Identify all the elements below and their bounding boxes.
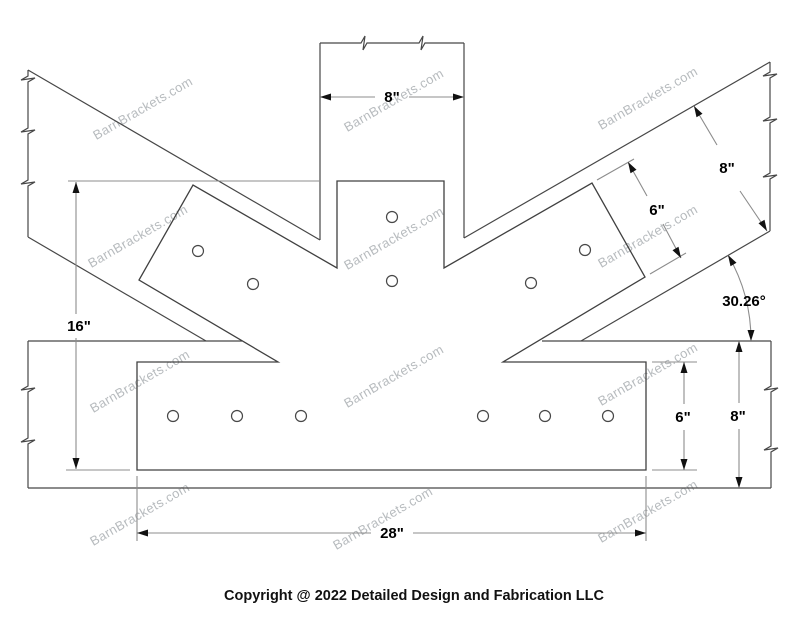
bolt-hole	[193, 246, 204, 257]
dim-diagonal-beam-width: 8"	[694, 106, 767, 231]
watermark-text: BarnBrackets.com	[341, 341, 446, 410]
dim-label-beam-height: 8"	[730, 408, 745, 425]
dim-plate-height: 6"	[652, 362, 697, 470]
arrowhead	[628, 162, 637, 173]
arrowhead	[759, 220, 768, 231]
bolt-hole	[580, 245, 591, 256]
watermark-text: BarnBrackets.com	[330, 483, 435, 552]
arrowhead	[673, 247, 682, 258]
dim-overall-height: 16"	[66, 181, 320, 470]
bolt-hole	[296, 411, 307, 422]
dim-label-diag-beam-width: 8"	[719, 160, 734, 177]
arrowhead	[73, 182, 80, 193]
bracket-drawing-page: BarnBrackets.com BarnBrackets.com BarnBr…	[0, 0, 800, 618]
watermark-text: BarnBrackets.com	[90, 73, 195, 142]
watermark-layer: BarnBrackets.com BarnBrackets.com BarnBr…	[85, 63, 700, 552]
watermark-text: BarnBrackets.com	[595, 476, 700, 545]
dim-label-arm-plate-width: 6"	[649, 202, 664, 219]
arrowhead	[736, 477, 743, 488]
fan-bracket-drawing: BarnBrackets.com BarnBrackets.com BarnBr…	[0, 0, 800, 618]
bolt-hole	[603, 411, 614, 422]
bolt-hole	[387, 212, 398, 223]
watermark-text: BarnBrackets.com	[595, 201, 700, 270]
copyright-text: Copyright @ 2022 Detailed Design and Fab…	[224, 588, 604, 604]
watermark-text: BarnBrackets.com	[85, 201, 190, 270]
bolt-hole	[248, 279, 259, 290]
dim-brace-angle: 30.26°	[722, 255, 766, 341]
arrowhead	[748, 330, 755, 341]
watermark-text: BarnBrackets.com	[595, 63, 700, 132]
bracket-plate	[137, 181, 646, 470]
arrowhead	[137, 530, 148, 537]
dim-post-width: 8"	[320, 89, 464, 106]
arrowhead	[635, 530, 646, 537]
arrowhead	[728, 255, 737, 266]
arrowhead	[736, 341, 743, 352]
bolt-hole	[168, 411, 179, 422]
arrowhead	[320, 94, 331, 101]
bolt-hole	[526, 278, 537, 289]
dim-label-plate-height: 6"	[675, 409, 690, 426]
watermark-text: BarnBrackets.com	[87, 346, 192, 415]
left-brace-outline	[21, 70, 320, 341]
arrowhead	[453, 94, 464, 101]
dim-beam-height: 8"	[730, 341, 745, 488]
dim-label-brace-angle: 30.26°	[722, 293, 766, 310]
arrowhead	[681, 362, 688, 373]
bolt-hole	[387, 276, 398, 287]
arrowhead	[681, 459, 688, 470]
arrowhead	[694, 106, 703, 117]
dim-label-post-width: 8"	[384, 89, 399, 106]
watermark-text: BarnBrackets.com	[87, 479, 192, 548]
bolt-hole	[232, 411, 243, 422]
bolt-hole	[540, 411, 551, 422]
post-outline	[320, 36, 464, 240]
dim-label-overall-height: 16"	[67, 318, 91, 335]
arrowhead	[73, 458, 80, 469]
bolt-hole	[478, 411, 489, 422]
dim-label-plate-length: 28"	[380, 525, 404, 542]
bracket-plate-outline	[137, 181, 646, 470]
